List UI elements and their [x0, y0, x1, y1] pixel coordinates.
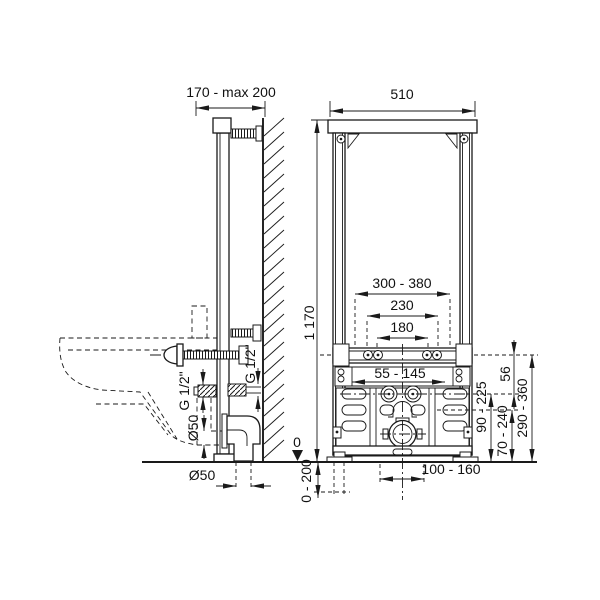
- dim-supply-thread-front-label: G 1/2": [176, 371, 192, 410]
- dim-stud-height-label: 290 - 360: [514, 378, 530, 437]
- dim-plate-range-label: 55 - 145: [374, 365, 426, 381]
- dim-wall-distance-label: 170 - max 200: [186, 84, 276, 100]
- dim-drain-offset-label: 100 - 160: [421, 461, 480, 477]
- dim-supply-thread-rear-label: G 1/2": [242, 344, 258, 383]
- bidet-fixing-stud: [150, 344, 248, 366]
- dim-leg-extension-label: 0 - 200: [298, 459, 314, 503]
- dim-stud-span-inner-label: 180: [390, 319, 414, 335]
- dim-frame-height: 1 170: [301, 120, 330, 462]
- dim-rail-to-supply: 56: [497, 340, 514, 409]
- wall-anchor-top: [231, 126, 262, 141]
- frame-column-side: [213, 118, 236, 462]
- dim-supply-thread-rear: G 1/2": [242, 344, 258, 412]
- acorn-nut: [164, 346, 177, 364]
- technical-drawing: 170 - max 200 510 1 170 300 - 380 230 18…: [0, 0, 600, 600]
- dim-stud-span-outer-label: 230: [390, 297, 414, 313]
- wall-hatch: [263, 118, 284, 462]
- dim-wall-distance: 170 - max 200: [186, 84, 276, 117]
- dim-drain-pipe-dia-label: Ø50: [185, 415, 201, 442]
- side-view: [60, 118, 284, 489]
- dim-supply-height: 90 - 225: [473, 381, 491, 462]
- dim-bracket-span-label: 300 - 380: [372, 275, 431, 291]
- dim-drain-outlet-dia: Ø50: [189, 467, 271, 486]
- dim-frame-height-label: 1 170: [301, 305, 317, 340]
- supply-fitting-front: [194, 385, 216, 397]
- dim-leg-extension: 0 - 200: [298, 459, 318, 503]
- wall-anchor-mid: [231, 325, 261, 341]
- faucet-box: [192, 306, 207, 338]
- dim-stud-height: 290 - 360: [514, 355, 532, 462]
- leg-extension-dashed: [314, 462, 350, 494]
- dim-drain-height-label: 70 - 240: [494, 405, 510, 457]
- corner-gussets: [337, 134, 468, 148]
- dim-frame-width-label: 510: [390, 86, 414, 102]
- dim-drain-outlet-dia-label: Ø50: [189, 467, 216, 483]
- supply-fitting-rear: [228, 384, 261, 396]
- datum-zero-label: 0: [293, 434, 301, 450]
- dim-frame-width: 510: [330, 86, 475, 117]
- datum-zero: 0: [292, 434, 303, 461]
- dim-rail-to-supply-label: 56: [497, 366, 513, 382]
- dim-supply-height-label: 90 - 225: [473, 381, 489, 433]
- dim-drain-height: 70 - 240: [494, 405, 512, 462]
- dim-drain-offset: 100 - 160: [380, 461, 481, 482]
- dim-drain-pipe-dia: Ø50: [185, 415, 204, 459]
